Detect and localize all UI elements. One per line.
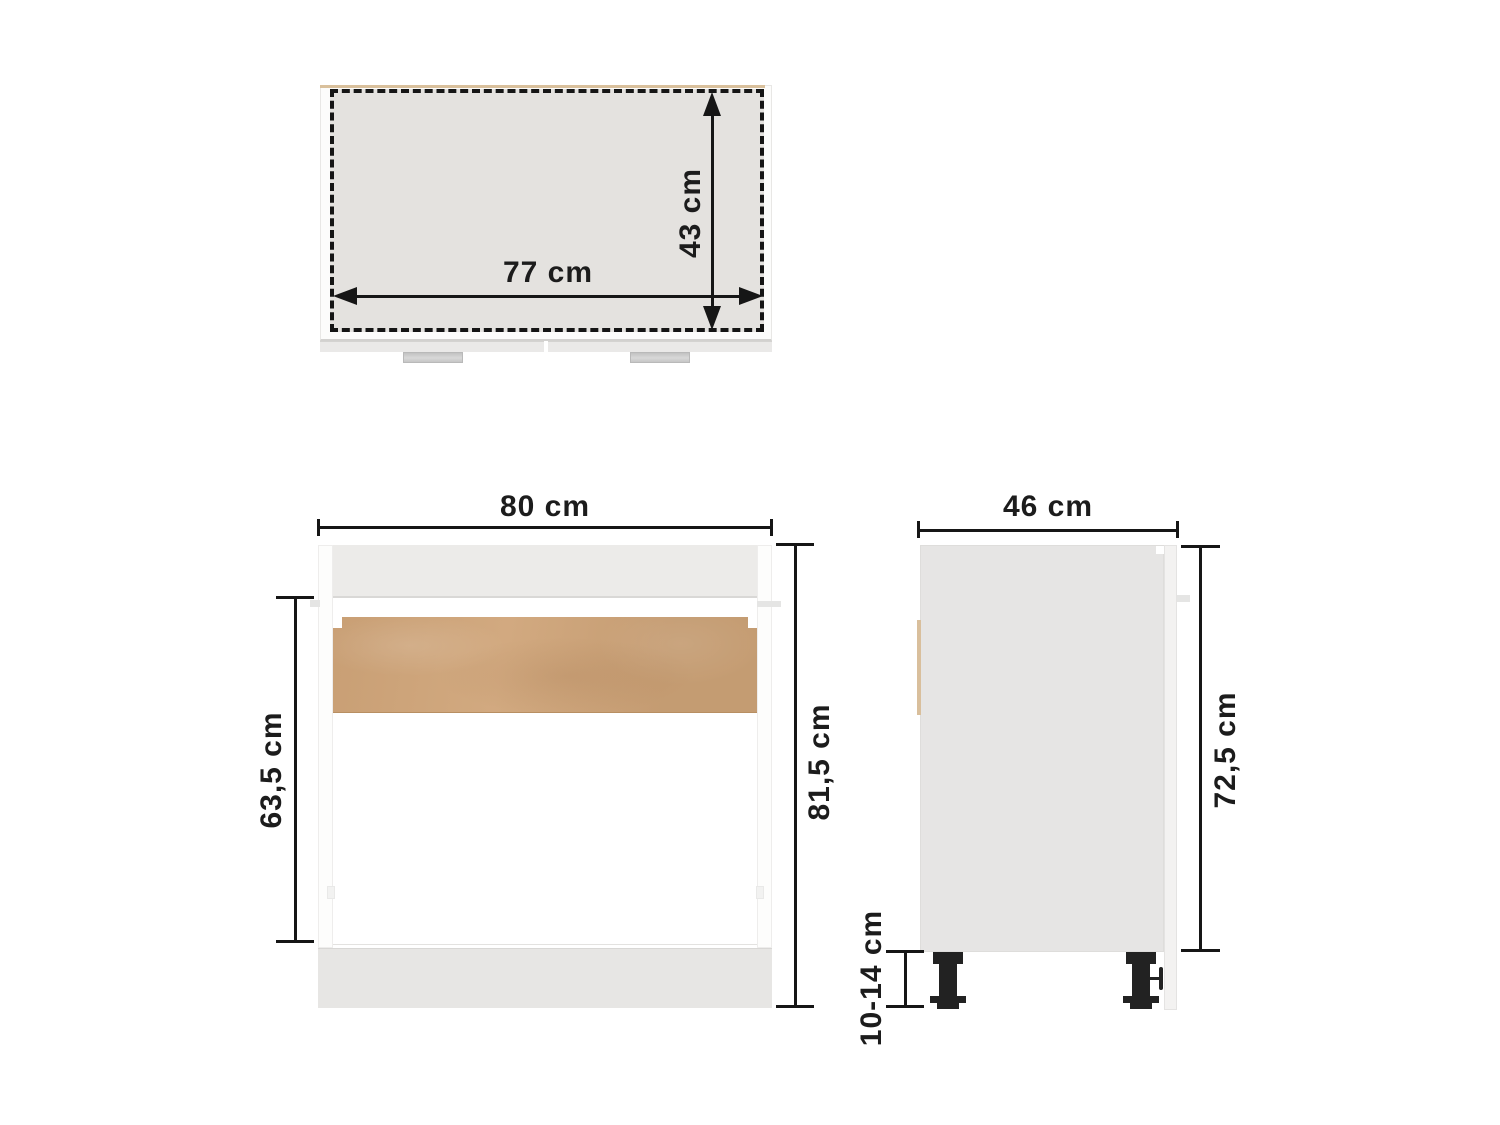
front-width-tick-right [770, 519, 773, 536]
front-leg-foot-icon [937, 1002, 959, 1009]
rear-leg-stem-icon [1132, 964, 1150, 998]
side-body-height-tick-top [1181, 545, 1220, 548]
arrowhead-left-icon [333, 287, 357, 305]
side-view-wood-panel-edge [917, 620, 921, 715]
hinge-tab-right-icon [757, 601, 781, 607]
top-width-dimension-label: 77 cm [448, 256, 648, 290]
side-body-height-tick-bottom [1181, 949, 1220, 952]
side-hinge-tab-icon [1177, 595, 1190, 602]
leg-adjuster-wing-icon [1159, 967, 1163, 990]
top-width-dimension-line [352, 295, 742, 298]
leg-height-tick-top [886, 950, 924, 953]
front-leg-stem-icon [939, 964, 957, 998]
rear-leg-foot-icon [1130, 1002, 1152, 1009]
arrowhead-up-icon [703, 92, 721, 116]
front-opening-height-tick-bottom [276, 940, 314, 943]
side-body-height-label: 72,5 cm [1209, 665, 1243, 835]
top-view-left-handle [403, 352, 463, 363]
hinge-tab-lower-right-icon [756, 886, 764, 899]
side-depth-dimension-label: 46 cm [948, 490, 1148, 524]
arrowhead-down-icon [703, 306, 721, 330]
top-view-back-edge [320, 85, 765, 88]
top-depth-dimension-label: 43 cm [674, 143, 708, 283]
front-view-open-interior [333, 713, 757, 945]
top-view-right-handle [630, 352, 690, 363]
side-view-top-notch [1156, 546, 1164, 554]
hinge-tab-left-icon [310, 600, 320, 607]
top-view-door-divider [544, 341, 548, 352]
front-view-plinth [318, 948, 772, 1008]
side-depth-tick-left [917, 521, 920, 538]
front-width-dimension-label: 80 cm [445, 490, 645, 524]
side-view-door-front-edge [1164, 545, 1177, 1010]
leg-height-tick-bottom [886, 1005, 924, 1008]
side-body-height-dimension-line [1199, 547, 1202, 952]
cabinet-dimensions-diagram: 77 cm 43 cm 80 cm [0, 0, 1500, 1125]
side-depth-tick-right [1176, 521, 1179, 538]
front-width-tick-left [317, 519, 320, 536]
arrowhead-right-icon [739, 287, 763, 305]
front-width-dimension-line [318, 526, 772, 529]
front-opening-height-dimension-line [294, 598, 297, 943]
rear-leg-cap-icon [1126, 952, 1156, 964]
front-view-panel-notch-right [748, 617, 757, 628]
hinge-tab-lower-left-icon [327, 886, 335, 899]
leg-height-dimension-line [904, 952, 907, 1008]
front-leg-cap-icon [933, 952, 963, 964]
side-view-side-panel [920, 545, 1164, 952]
front-opening-height-tick-top [276, 596, 314, 599]
side-depth-dimension-line [918, 529, 1178, 532]
top-depth-dimension-line [711, 112, 714, 310]
front-view-panel-notch-left [333, 617, 342, 628]
front-view-top-rail [333, 545, 757, 598]
front-total-height-dimension-line [794, 545, 797, 1008]
front-total-height-tick-bottom [776, 1005, 814, 1008]
front-total-height-label: 81,5 cm [803, 677, 837, 847]
front-total-height-tick-top [776, 543, 814, 546]
front-opening-height-label: 63,5 cm [255, 685, 289, 855]
front-view-wood-back-panel [333, 617, 757, 713]
leg-height-label: 10-14 cm [855, 888, 889, 1068]
